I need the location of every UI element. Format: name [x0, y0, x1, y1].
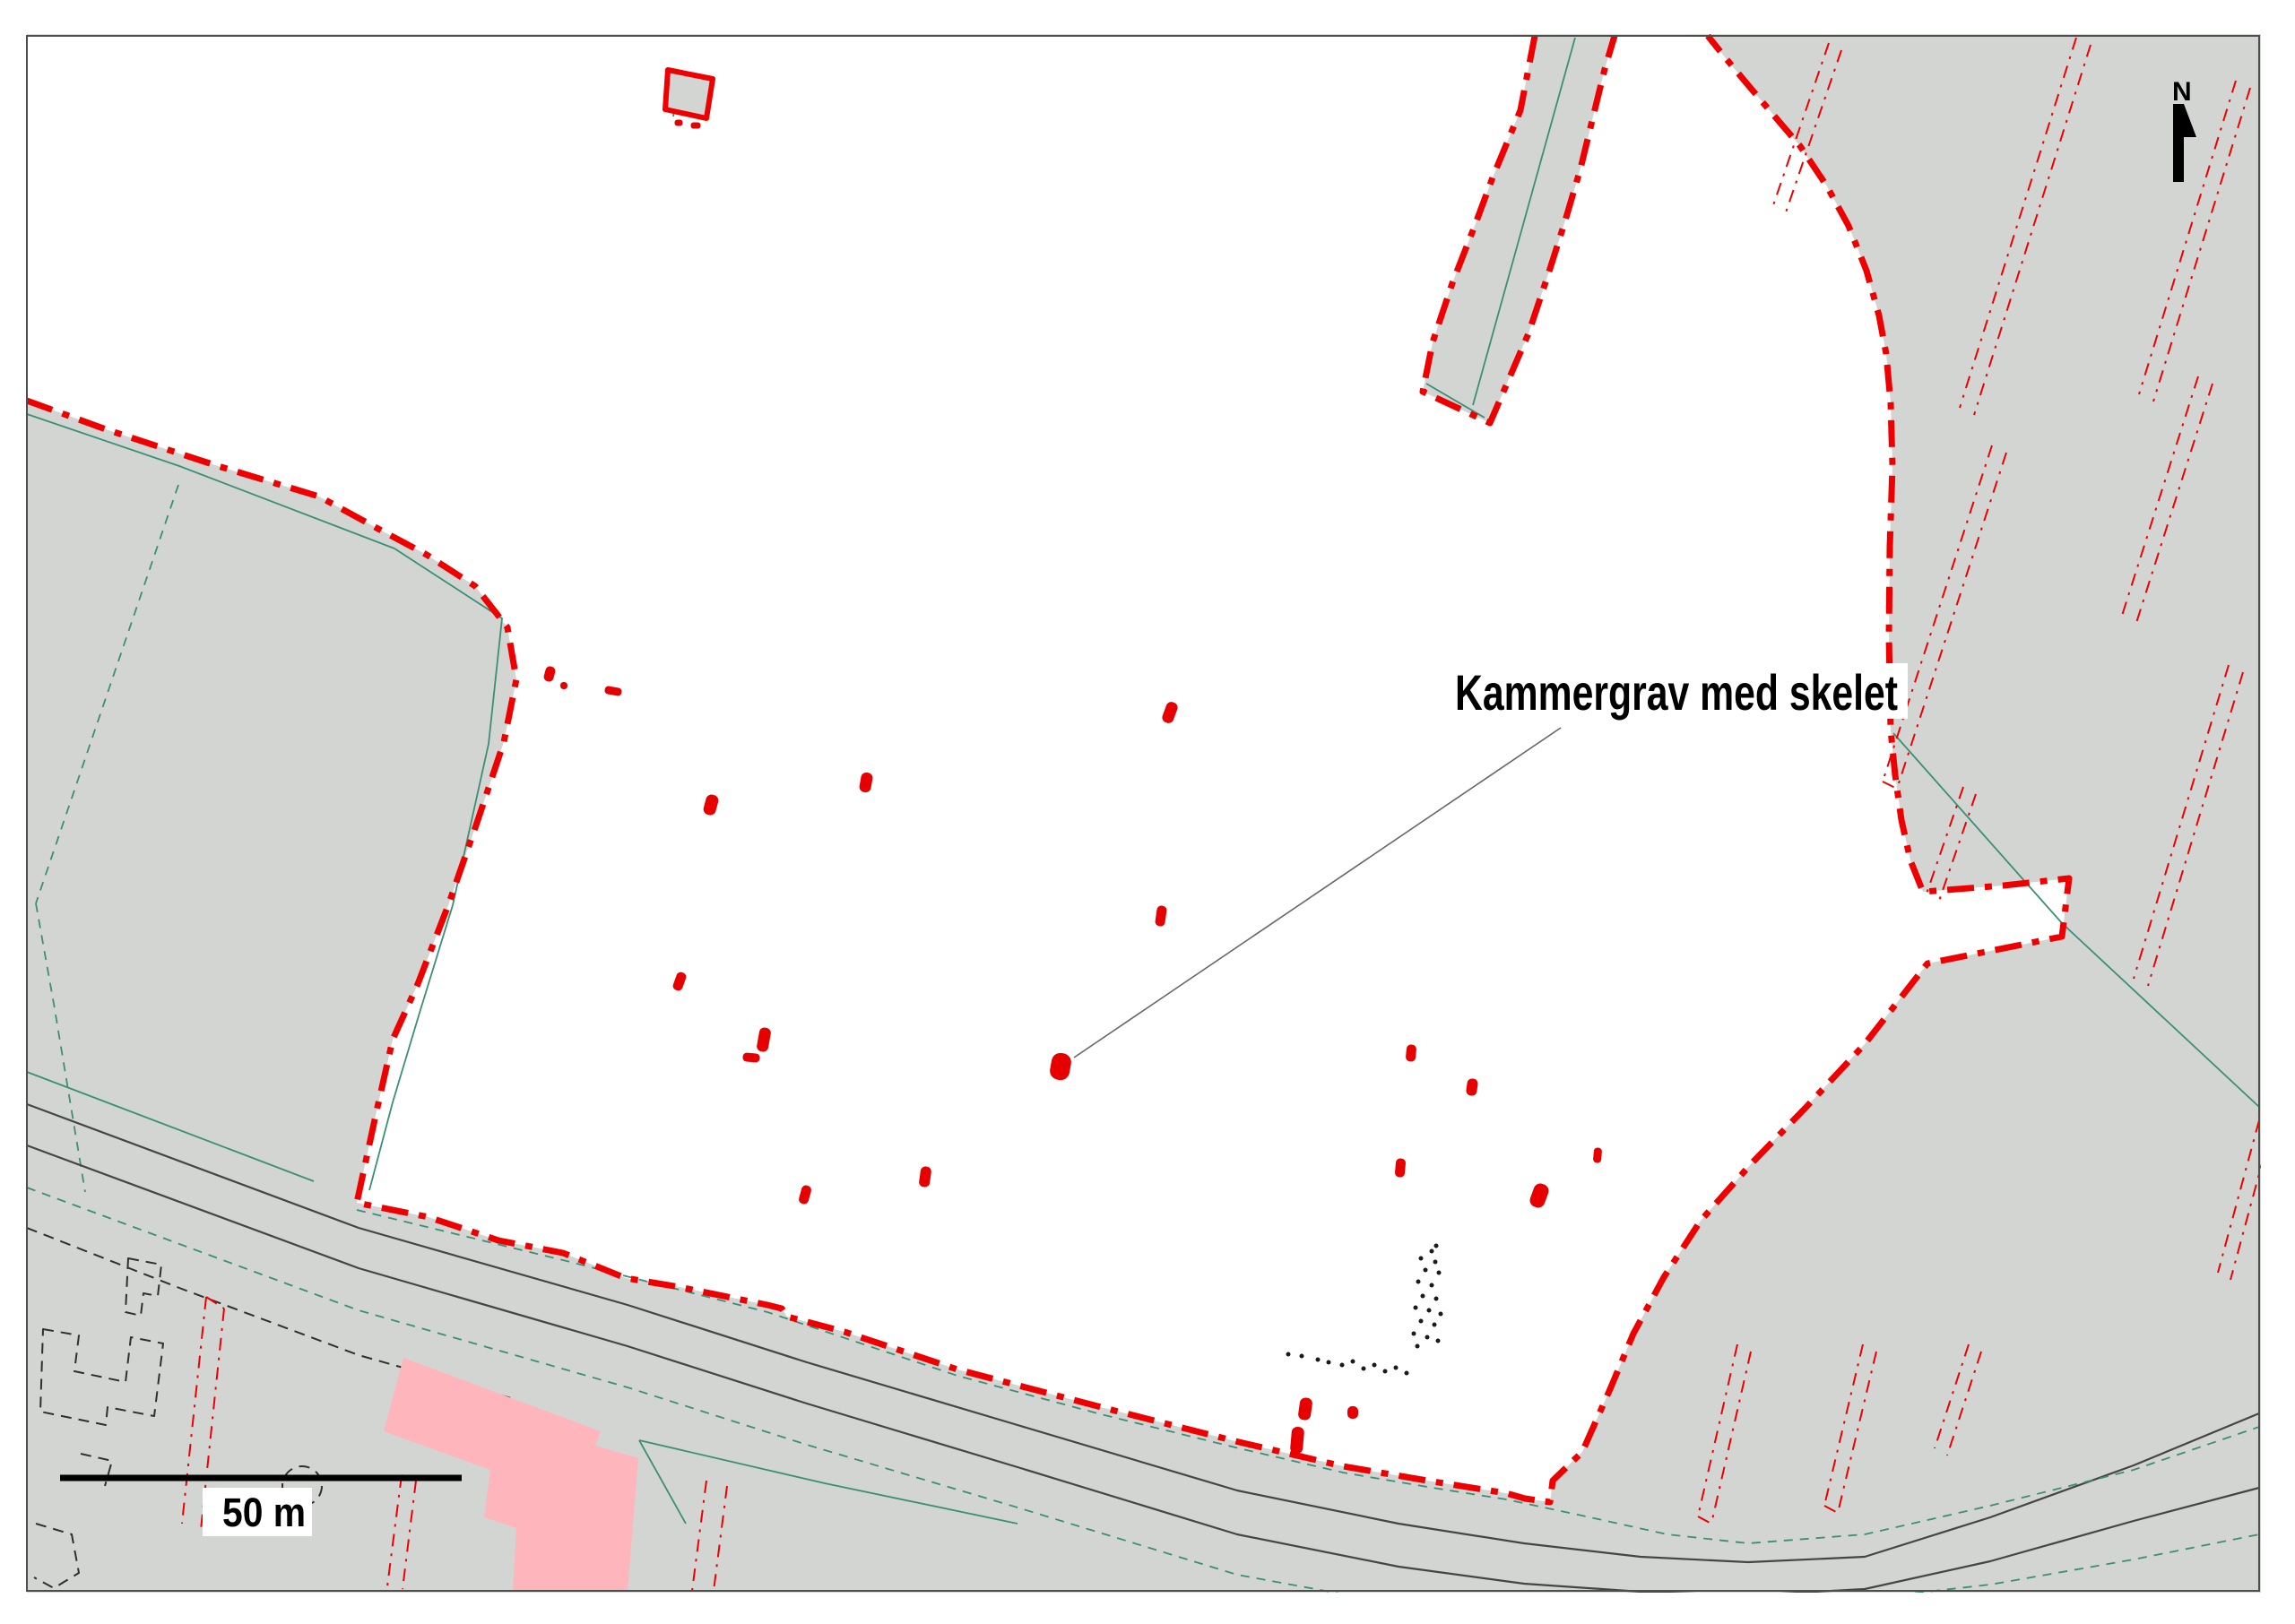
- excavation-feature: [1290, 1426, 1305, 1454]
- annotation-label: Kammergrav med skelet: [1445, 663, 1908, 721]
- posthole-dot: [1430, 1283, 1434, 1288]
- north-arrow-shaft: [2173, 104, 2184, 182]
- posthole-dot: [1300, 1354, 1304, 1359]
- posthole-dot: [1424, 1268, 1428, 1273]
- posthole-dot: [1383, 1369, 1388, 1374]
- site-map: Kammergrav med skelet 50 m N: [0, 0, 2295, 1624]
- scale-bar-label: 50 m: [222, 1490, 306, 1535]
- posthole-dot: [1434, 1244, 1439, 1248]
- posthole-dot: [1430, 1249, 1434, 1254]
- excavation-feature: [675, 120, 683, 126]
- posthole-dot: [1434, 1297, 1439, 1301]
- posthole-dot: [1437, 1271, 1442, 1275]
- posthole-dot: [1421, 1294, 1425, 1299]
- posthole-dot: [1433, 1260, 1438, 1265]
- excavation-feature: [691, 123, 701, 129]
- posthole-dot: [1394, 1366, 1399, 1370]
- posthole-dot: [1286, 1352, 1291, 1357]
- posthole-dot: [1419, 1319, 1424, 1324]
- posthole-dot: [1316, 1358, 1321, 1362]
- posthole-dot: [1419, 1257, 1424, 1261]
- excavation-feature: [1347, 1406, 1358, 1419]
- posthole-dot: [1362, 1367, 1366, 1371]
- posthole-dot: [1373, 1363, 1377, 1368]
- posthole-dot: [1414, 1306, 1418, 1310]
- posthole-dot: [1427, 1309, 1432, 1313]
- annotation-label-text: Kammergrav med skelet: [1455, 664, 1898, 721]
- posthole-dot: [1412, 1332, 1416, 1336]
- posthole-dot: [1416, 1280, 1421, 1284]
- posthole-dot: [1433, 1323, 1437, 1327]
- posthole-dot: [1327, 1361, 1331, 1365]
- posthole-dot: [1405, 1371, 1409, 1376]
- map-page: Kammergrav med skelet 50 m N: [0, 0, 2295, 1624]
- boundary-island: [665, 70, 713, 118]
- excavation-feature: [742, 1052, 760, 1063]
- posthole-dot: [1351, 1360, 1355, 1364]
- excavation-feature: [560, 682, 567, 689]
- posthole-dot: [1416, 1344, 1420, 1349]
- posthole-dot: [1425, 1335, 1430, 1340]
- excavation-feature: [1406, 1044, 1417, 1062]
- north-arrow-label: N: [2172, 77, 2192, 107]
- excavation-feature: [1593, 1147, 1602, 1163]
- posthole-dot: [1340, 1363, 1345, 1368]
- excavation-feature: [1395, 1158, 1407, 1178]
- posthole-dot: [1436, 1339, 1441, 1343]
- posthole-dot: [1439, 1312, 1443, 1317]
